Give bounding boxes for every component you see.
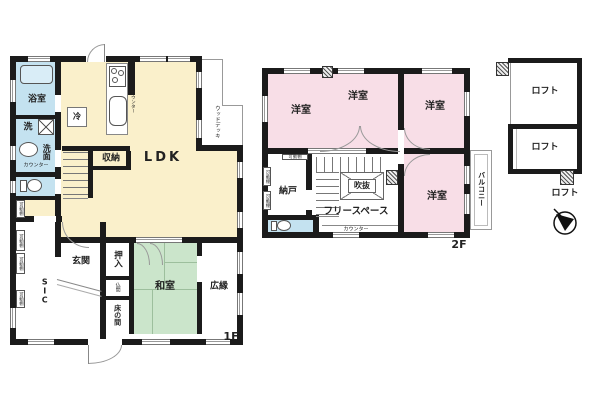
vent-icon xyxy=(386,170,398,185)
washitsu-label: 和室 xyxy=(155,282,175,293)
window-mark xyxy=(10,146,16,160)
window-mark xyxy=(428,232,454,238)
vent-icon xyxy=(560,170,574,185)
north-arrow-icon xyxy=(546,202,582,238)
wall-segment xyxy=(508,124,582,129)
hiroen-label: 広縁 xyxy=(210,282,228,291)
balcony-label: バルコニー xyxy=(477,172,484,207)
vent-icon xyxy=(322,66,333,78)
wall-segment xyxy=(88,151,93,198)
wall-segment xyxy=(103,276,131,280)
window-mark xyxy=(338,68,364,74)
laundry-label: 洗 xyxy=(23,123,32,132)
loft-label: ロフト xyxy=(531,87,558,96)
wall-segment xyxy=(93,166,131,170)
shelf-label: 可動棚 xyxy=(18,202,24,216)
door-opening xyxy=(34,216,56,222)
burner-icon xyxy=(111,68,117,74)
wall-segment xyxy=(129,243,134,334)
kitchen-sink-icon xyxy=(109,96,127,126)
staircase-1f xyxy=(63,152,88,198)
bedroom-label: 洋室 xyxy=(291,106,311,117)
shelf-label: 可動棚 xyxy=(264,194,270,208)
shelf-label: 可動棚 xyxy=(18,292,24,306)
window-mark xyxy=(237,212,243,228)
door-arc xyxy=(62,222,89,248)
washer-icon xyxy=(38,119,54,135)
window-mark xyxy=(142,339,170,345)
window-mark xyxy=(422,68,452,74)
window-mark xyxy=(262,96,268,122)
window-mark xyxy=(196,72,202,88)
shelf-box: 可動棚 xyxy=(16,253,25,274)
window-mark xyxy=(284,68,310,74)
counter-label-1f: カウンター xyxy=(23,163,48,168)
bedroom-label: 洋室 xyxy=(348,92,368,103)
window-mark xyxy=(28,56,50,62)
wall-segment xyxy=(55,222,61,257)
wall-segment xyxy=(62,146,130,151)
wall-segment xyxy=(10,172,61,177)
bathtub-icon xyxy=(20,65,53,84)
loft-label: ロフト xyxy=(531,143,558,152)
shelf-label: 可動棚 xyxy=(18,234,24,248)
shelf-box: 可動棚 xyxy=(16,200,25,218)
tatami-line xyxy=(164,262,197,263)
void-label: 吹抜 xyxy=(354,182,370,190)
wall-segment xyxy=(262,215,319,220)
sliding-door-mark xyxy=(136,237,182,243)
floor2-label: 2F xyxy=(451,239,466,251)
wall-segment xyxy=(196,145,243,151)
tatami-line xyxy=(152,289,153,334)
vanity-label: 洗面 xyxy=(42,144,50,160)
wall-segment xyxy=(508,58,582,63)
window-mark xyxy=(168,56,190,62)
shelf-label: 可動棚 xyxy=(288,154,302,160)
shelf-box: 可動棚 xyxy=(282,154,308,160)
wood-deck-label: ウッドデッキ xyxy=(213,106,219,139)
shelf-box: 可動棚 xyxy=(16,230,25,251)
window-mark xyxy=(464,92,470,116)
toilet-bowl-icon xyxy=(277,220,291,231)
wall-segment xyxy=(577,58,582,174)
burner-icon xyxy=(118,70,124,76)
shelf-box: 可動棚 xyxy=(16,290,25,308)
window-mark xyxy=(10,308,16,328)
kitchen-counter-label: カウンター xyxy=(130,91,135,114)
loft-edge-line xyxy=(510,63,511,124)
tokonoma-label: 床の間 xyxy=(113,305,120,326)
wall-segment xyxy=(103,296,131,300)
burner-icon xyxy=(112,77,118,83)
shelf-box: 可動棚 xyxy=(263,191,271,210)
shelf-label: 可動棚 xyxy=(18,257,24,271)
window-mark xyxy=(237,162,243,178)
toilet-tank-icon xyxy=(20,180,27,192)
window-mark xyxy=(237,252,243,274)
entrance-door-arc xyxy=(88,345,122,364)
loft-edge-line xyxy=(516,129,517,169)
oshiire-label: 押入 xyxy=(113,251,122,268)
wall-segment xyxy=(508,124,513,174)
fridge-label: 冷 xyxy=(73,113,81,121)
window-mark xyxy=(28,339,54,345)
window-mark xyxy=(237,293,243,315)
floor-plan: 可動棚 可動棚 可動棚 可動棚 浴室 洗 洗面 カウンター 冷 カウンター 収納… xyxy=(0,0,600,400)
bedroom-label: 洋室 xyxy=(425,102,445,113)
nando-label: 納戸 xyxy=(279,187,297,196)
window-mark xyxy=(196,120,202,138)
window-mark xyxy=(333,232,359,238)
ldk-label: LDK xyxy=(144,151,182,165)
door-opening xyxy=(306,190,312,210)
sic-label: SIC xyxy=(40,278,48,305)
floor1-label: 1F xyxy=(223,331,238,343)
butsuma-label: 仏間 xyxy=(114,282,119,292)
stair-edge xyxy=(63,198,88,199)
wall-segment xyxy=(128,56,135,95)
wood-deck-outline xyxy=(201,105,243,146)
door-opening xyxy=(197,256,202,282)
room-ldk-east xyxy=(196,151,237,237)
window-mark xyxy=(464,166,470,184)
counter-label-2f: カウンター xyxy=(343,227,368,232)
shelf-label: 可動棚 xyxy=(264,170,270,184)
toilet-bowl-icon xyxy=(27,179,42,192)
wall-segment xyxy=(313,215,319,238)
staircase-2f xyxy=(316,157,384,172)
vent-icon xyxy=(496,62,509,76)
storage-label: 収納 xyxy=(102,154,120,163)
door-leaf xyxy=(104,44,105,62)
entrance-label: 玄関 xyxy=(72,257,90,266)
door-arc xyxy=(87,44,105,62)
door-leaf xyxy=(88,345,89,364)
wood-deck-outline xyxy=(222,105,243,106)
door-opening xyxy=(55,179,61,194)
door-opening xyxy=(55,95,61,112)
free-space-label: フリースペース xyxy=(324,207,389,217)
door-opening xyxy=(55,150,61,167)
window-mark xyxy=(464,194,470,214)
window-mark xyxy=(10,80,16,102)
window-mark xyxy=(10,181,16,193)
bedroom-label: 洋室 xyxy=(427,192,447,203)
window-mark xyxy=(140,56,166,62)
bath-label: 浴室 xyxy=(28,95,46,104)
loft-label: ロフト xyxy=(551,189,578,198)
wall-segment xyxy=(100,222,106,339)
shelf-box: 可動棚 xyxy=(263,167,271,186)
sink-icon xyxy=(19,142,38,157)
wood-deck-outline xyxy=(201,59,223,106)
